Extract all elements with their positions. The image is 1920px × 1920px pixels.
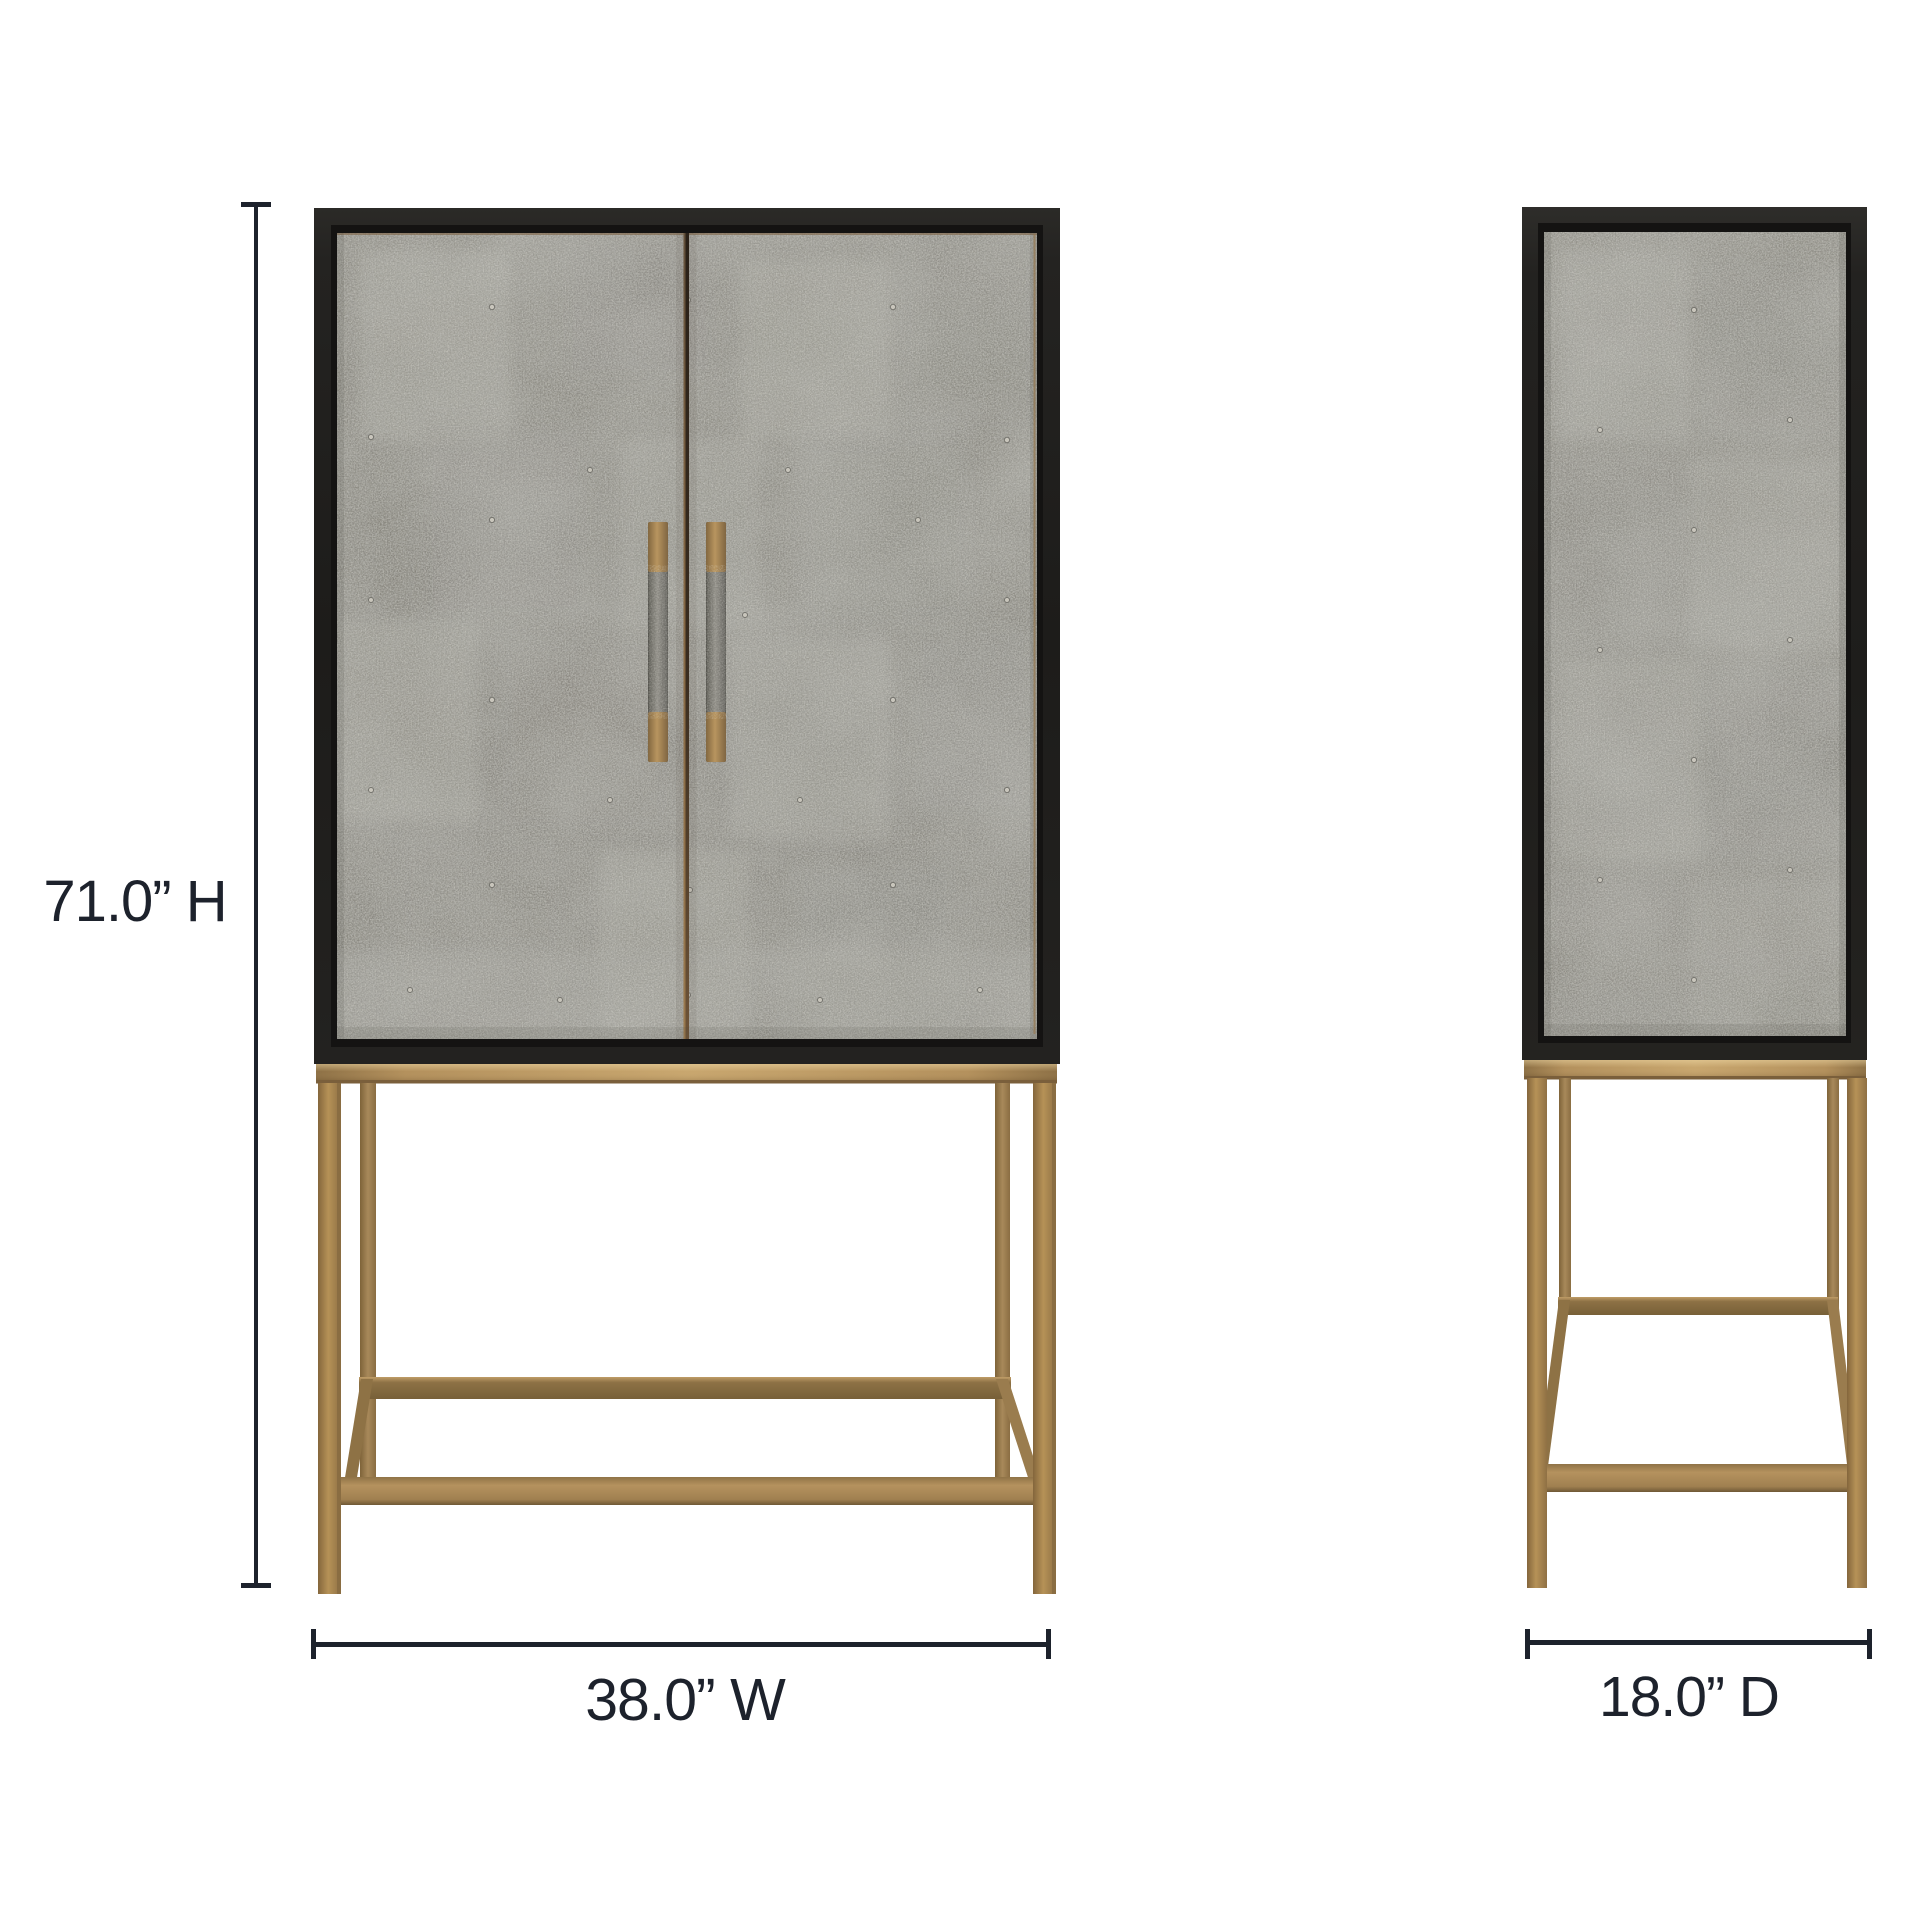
svg-text:71.0” H: 71.0” H [43,869,226,934]
svg-text:38.0” W: 38.0” W [585,1667,786,1733]
svg-text:18.0” D: 18.0” D [1599,1665,1779,1729]
